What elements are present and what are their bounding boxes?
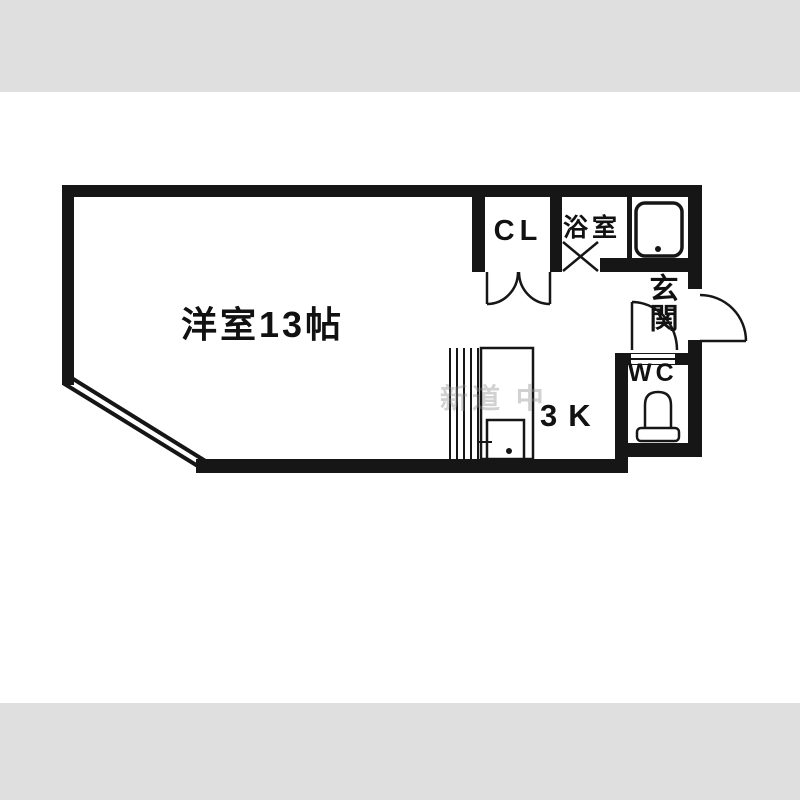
entrance-door-swing-icon (700, 295, 746, 341)
toilet-label: WC (628, 361, 678, 386)
main-room-label: 洋室13帖 (181, 307, 344, 343)
closet-double-door-swing-icon (487, 272, 550, 304)
kitchen-sink-dot (506, 448, 512, 454)
wall-top (62, 185, 702, 197)
bathroom-label: 浴室 (563, 216, 621, 241)
watermark-text: 新道 中 (440, 385, 548, 413)
floorplan-drawing (0, 0, 800, 800)
wall-row-bottom-seg2 (550, 258, 562, 272)
wall-left (62, 185, 74, 385)
window-diagonal-icon (63, 377, 207, 468)
bathroom-folding-door-icon (563, 242, 598, 271)
kitchen-label: 3K (540, 400, 602, 431)
wall-bottom-main (196, 459, 628, 473)
wall-row-bottom-seg1 (472, 258, 485, 272)
entrance-label: 玄関 (646, 273, 675, 337)
bathtub-icon (636, 203, 682, 256)
wall-wc-bottom (615, 443, 702, 457)
bathtub-drain-dot (655, 246, 661, 252)
wall-right-upper (688, 185, 702, 289)
toilet-icon (637, 392, 679, 441)
kitchen-sink-basin (487, 420, 524, 459)
wall-row-bottom-seg3 (600, 258, 702, 272)
floorplan-page: 洋室13帖 CL 浴室 玄関 WC 3K 新道 中 (0, 0, 800, 800)
closet-label: CL (484, 217, 552, 246)
wall-bath-tub-divider (627, 197, 632, 258)
